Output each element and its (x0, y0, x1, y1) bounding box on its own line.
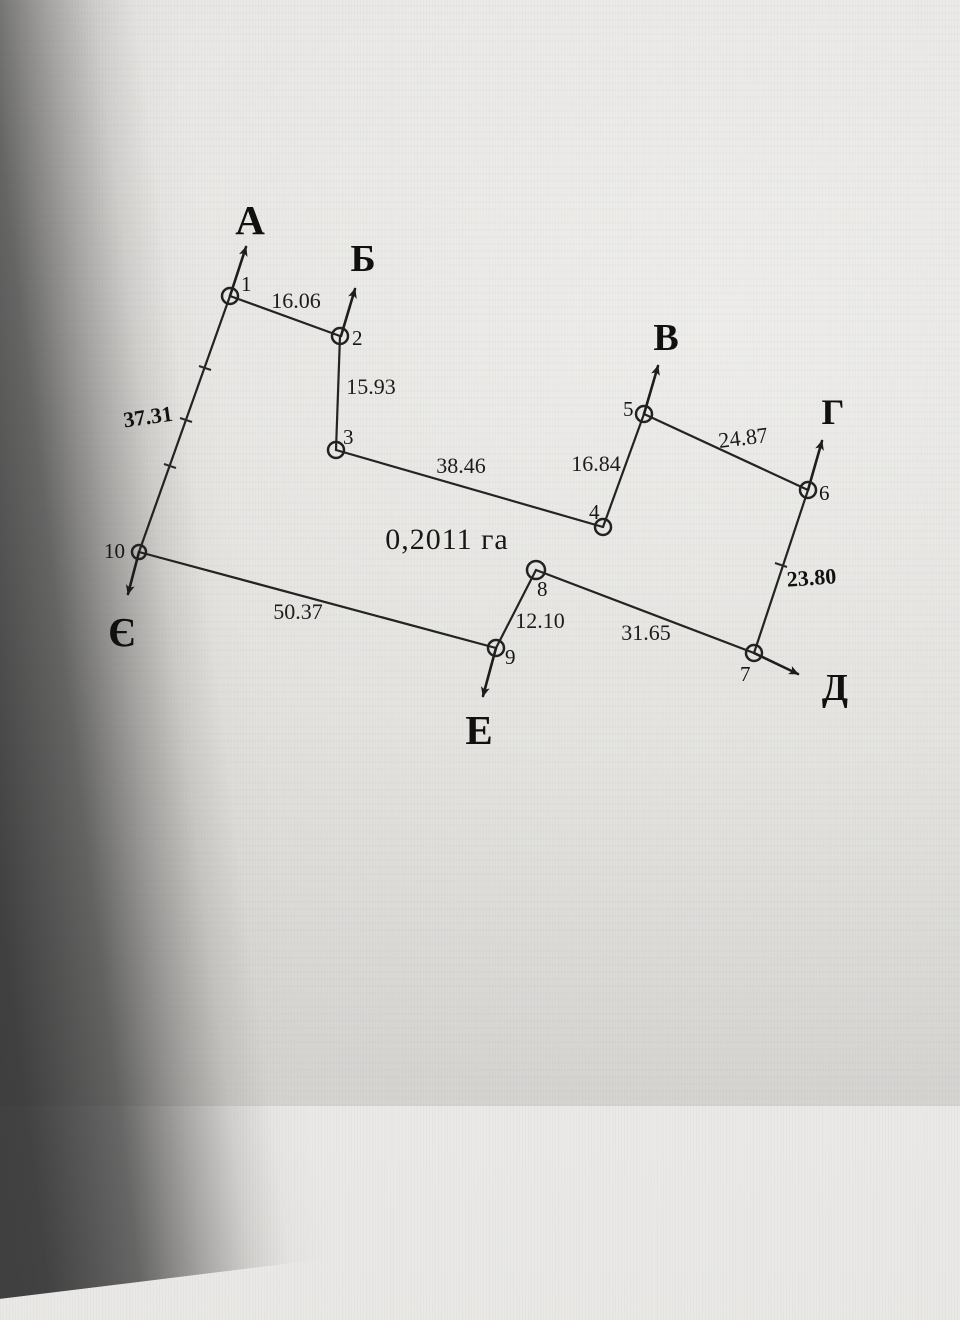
distance-label-9-10: 50.37 (273, 599, 323, 624)
distance-label-6-7: 23.80 (786, 563, 837, 591)
point-number-5: 5 (623, 397, 634, 421)
adjacent-parcel-letter-b: Б (350, 238, 375, 280)
point-numbers: 1 2 3 4 5 6 7 8 9 10 (104, 272, 830, 686)
distance-label-7-8: 31.65 (621, 620, 671, 645)
point-number-6: 6 (819, 481, 830, 505)
distance-labels: 16.06 15.93 38.46 16.84 24.87 23.80 31.6… (122, 288, 837, 645)
point-number-2: 2 (352, 326, 363, 350)
distance-label-4-5: 16.84 (571, 451, 621, 476)
distance-label-1-2: 16.06 (271, 288, 321, 313)
point-number-7: 7 (740, 662, 751, 686)
point-number-1: 1 (241, 272, 252, 296)
distance-label-10-1: 37.31 (122, 401, 174, 433)
point-number-4: 4 (589, 500, 600, 524)
point-number-3: 3 (343, 425, 354, 449)
adjacent-parcel-letter-d: Д (822, 667, 848, 709)
cadastral-plan-drawing: 1 2 3 4 5 6 7 8 9 10 16.06 15.93 38.46 1… (0, 0, 960, 1106)
area-label: 0,2011 га (385, 523, 509, 556)
adjacent-parcel-letter-ye: Є (108, 609, 136, 655)
point-number-9: 9 (505, 645, 516, 669)
adjacent-parcel-letter-e: Е (465, 707, 492, 753)
boundary-edge-2-3 (336, 336, 340, 450)
distance-label-2-3: 15.93 (346, 374, 396, 399)
distance-label-8-9: 12.10 (515, 608, 565, 633)
point-number-8: 8 (537, 577, 548, 601)
scanned-survey-page: { "plan": { "area_label": "0,2011 га", "… (0, 0, 960, 1106)
distance-label-3-4: 38.46 (436, 453, 486, 478)
distance-label-5-6: 24.87 (717, 422, 769, 453)
adjacent-parcel-letter-v: В (653, 317, 678, 359)
adjacent-parcel-letter-a: А (235, 197, 265, 243)
adjacent-parcel-letter-g: Г (822, 392, 845, 432)
point-number-10: 10 (104, 539, 125, 563)
